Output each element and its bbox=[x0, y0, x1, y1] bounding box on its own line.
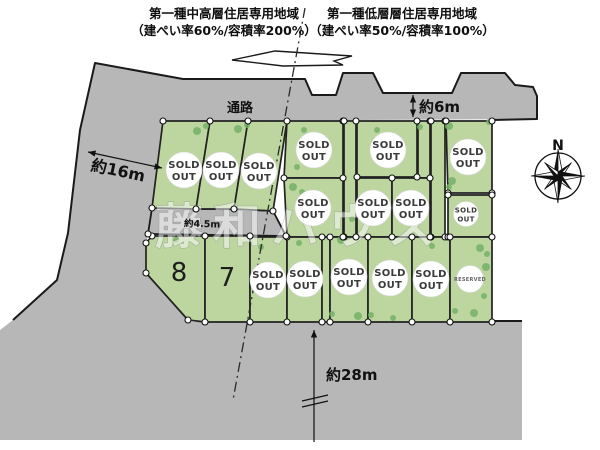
boundary-node-dot bbox=[327, 319, 333, 325]
sold-out-badge: SOLDOUT bbox=[372, 260, 408, 296]
road-sliver-shape bbox=[232, 51, 352, 66]
badge-text: OUT bbox=[302, 152, 326, 163]
boundary-node-dot bbox=[489, 192, 495, 198]
boundary-node-dot bbox=[445, 192, 451, 198]
badge-text: OUT bbox=[399, 210, 423, 221]
zoning-label-right: 第一種低層層住居専用地域 （建ぺい率50%/容積率100%） bbox=[304, 6, 500, 39]
badge-text: OUT bbox=[457, 216, 474, 224]
sold-out-badge: SOLDOUT bbox=[413, 261, 449, 297]
boundary-node-dot bbox=[414, 174, 420, 180]
badge-text: SOLD bbox=[205, 160, 237, 171]
badge-text: OUT bbox=[301, 210, 325, 221]
badge-text: OUT bbox=[419, 281, 443, 292]
dim-6m-label: 約6m bbox=[419, 98, 460, 116]
sold-out-badge: SOLDOUT bbox=[393, 190, 429, 226]
boundary-node-dot bbox=[354, 174, 360, 180]
passage-label: 通路 bbox=[227, 100, 254, 116]
badge-text: OUT bbox=[256, 282, 280, 293]
boundary-node-dot bbox=[143, 240, 149, 246]
boundary-node-dot bbox=[340, 234, 346, 240]
boundary-node-dot bbox=[207, 118, 213, 124]
boundary-node-dot bbox=[247, 319, 253, 325]
badge-text: SOLD bbox=[298, 140, 330, 151]
badge-text: OUT bbox=[247, 173, 271, 184]
boundary-node-dot bbox=[283, 233, 289, 239]
tree-icon bbox=[417, 124, 423, 130]
boundary-node-dot bbox=[353, 234, 359, 240]
badge-text: SOLD bbox=[395, 198, 427, 209]
badge-text: SOLD bbox=[452, 147, 484, 158]
boundary-node-dot bbox=[489, 319, 495, 325]
boundary-node-dot bbox=[447, 234, 453, 240]
boundary-node-dot bbox=[489, 234, 495, 240]
boundary-node-dot bbox=[185, 317, 191, 323]
badge-text: OUT bbox=[378, 280, 402, 291]
badge-text: SOLD bbox=[372, 140, 404, 151]
plat-map: 藤和ハウスSOLDOUTSOLDOUTSOLDOUTSOLDOUTSOLDOUT… bbox=[0, 0, 600, 450]
boundary-node-dot bbox=[409, 234, 415, 240]
boundary-node-dot bbox=[284, 118, 290, 124]
tree-icon bbox=[374, 127, 380, 133]
badge-text: SOLD bbox=[252, 270, 284, 281]
boundary-node-dot bbox=[284, 319, 290, 325]
boundary-node-dot bbox=[319, 234, 325, 240]
badge-text: SOLD bbox=[168, 160, 200, 171]
badge-text: SOLD bbox=[455, 207, 477, 215]
badge-text: OUT bbox=[456, 159, 480, 170]
sold-out-badge: SOLDOUT bbox=[241, 153, 277, 189]
boundary-node-dot bbox=[409, 319, 415, 325]
badge-text: OUT bbox=[293, 281, 317, 292]
boundary-node-dot bbox=[270, 208, 276, 214]
badge-text: SOLD bbox=[374, 268, 406, 279]
boundary-node-dot bbox=[389, 175, 395, 181]
tree-icon bbox=[452, 308, 458, 314]
tree-icon bbox=[446, 184, 452, 190]
boundary-node-dot bbox=[149, 205, 155, 211]
tree-icon bbox=[484, 251, 490, 257]
sold-out-badge: SOLDOUT bbox=[250, 262, 286, 298]
boundary-node-dot bbox=[231, 206, 237, 212]
boundary-node-dot bbox=[160, 118, 166, 124]
boundary-node-dot bbox=[443, 118, 449, 124]
badge-text: SOLD bbox=[357, 198, 389, 209]
tree-icon bbox=[476, 244, 484, 252]
dim-28m-label: 約28m bbox=[326, 366, 378, 384]
boundary-node-dot bbox=[489, 118, 495, 124]
site-map-svg: 藤和ハウスSOLDOUTSOLDOUTSOLDOUTSOLDOUTSOLDOUT… bbox=[0, 0, 600, 450]
sold-out-badge: SOLDOUT bbox=[287, 261, 323, 297]
boundary-node-dot bbox=[447, 319, 453, 325]
lot-number: 8 bbox=[171, 258, 188, 288]
tree-icon bbox=[329, 311, 335, 317]
zoning-right-line2: （建ぺい率50%/容積率100%） bbox=[304, 23, 500, 40]
road-width-mid-label: 約4.5m bbox=[184, 217, 221, 230]
boundary-node-dot bbox=[340, 175, 346, 181]
tree-icon bbox=[482, 263, 490, 271]
boundary-node-dot bbox=[341, 118, 347, 124]
boundary-node-dot bbox=[193, 206, 199, 212]
lot-number: 7 bbox=[219, 263, 236, 293]
sold-out-badge: SOLDOUT bbox=[331, 259, 367, 295]
zoning-right-line1: 第一種低層層住居専用地域 bbox=[304, 6, 500, 23]
sold-out-badge: SOLDOUT bbox=[203, 152, 239, 188]
badge-text: SOLD bbox=[297, 198, 329, 209]
boundary-node-dot bbox=[365, 319, 371, 325]
tree-icon bbox=[390, 315, 396, 321]
boundary-node-dot bbox=[414, 118, 420, 124]
tree-icon bbox=[470, 309, 478, 317]
tree-icon bbox=[368, 312, 374, 318]
boundary-node-dot bbox=[202, 319, 208, 325]
sold-out-badge: SOLDOUT bbox=[296, 132, 332, 168]
sold-out-badge: SOLDOUT bbox=[454, 202, 479, 227]
compass-north-label: N bbox=[552, 138, 564, 154]
sold-out-badge: SOLDOUT bbox=[295, 190, 331, 226]
tree-icon bbox=[481, 293, 487, 299]
boundary-node-dot bbox=[245, 118, 251, 124]
boundary-node-dot bbox=[365, 234, 371, 240]
badge-text: OUT bbox=[209, 172, 233, 183]
badge-text: OUT bbox=[376, 152, 400, 163]
compass-center-dot bbox=[556, 174, 560, 178]
sold-out-badge: SOLDOUT bbox=[450, 139, 486, 175]
sold-out-badge: SOLDOUT bbox=[355, 190, 391, 226]
boundary-node-dot bbox=[319, 319, 325, 325]
boundary-node-dot bbox=[247, 233, 253, 239]
badge-text: SOLD bbox=[415, 269, 447, 280]
boundary-node-dot bbox=[353, 118, 359, 124]
badge-text: SOLD bbox=[289, 269, 321, 280]
tree-icon bbox=[193, 127, 201, 135]
zoning-left-line2: （建ぺい率60%/容積率200%） bbox=[118, 23, 330, 40]
badge-text: OUT bbox=[361, 210, 385, 221]
boundary-node-dot bbox=[327, 234, 333, 240]
sold-out-badge: SOLDOUT bbox=[370, 132, 406, 168]
tree-icon bbox=[234, 125, 242, 133]
boundary-node-dot bbox=[427, 234, 433, 240]
badge-text: OUT bbox=[337, 279, 361, 290]
tree-icon bbox=[354, 312, 362, 320]
boundary-node-dot bbox=[427, 175, 433, 181]
tree-icon bbox=[301, 127, 307, 133]
zoning-label-left: 第一種中高層住居専用地域 （建ぺい率60%/容積率200%） bbox=[118, 6, 330, 39]
boundary-node-dot bbox=[428, 118, 434, 124]
badge-text: SOLD bbox=[333, 267, 365, 278]
boundary-node-dot bbox=[281, 175, 287, 181]
sold-out-badge: SOLDOUT bbox=[166, 152, 202, 188]
zoning-left-line1: 第一種中高層住居専用地域 bbox=[118, 6, 330, 23]
badge-text: RESERVED bbox=[454, 277, 486, 283]
boundary-node-dot bbox=[143, 270, 149, 276]
boundary-node-dot bbox=[202, 233, 208, 239]
badge-text: OUT bbox=[172, 172, 196, 183]
boundary-node-dot bbox=[389, 234, 395, 240]
compass-rose: N bbox=[531, 138, 585, 203]
tree-icon bbox=[289, 183, 297, 191]
boundary-node-dot bbox=[145, 231, 151, 237]
tree-icon bbox=[294, 164, 300, 170]
badge-text: SOLD bbox=[243, 161, 275, 172]
tree-icon bbox=[448, 177, 456, 185]
